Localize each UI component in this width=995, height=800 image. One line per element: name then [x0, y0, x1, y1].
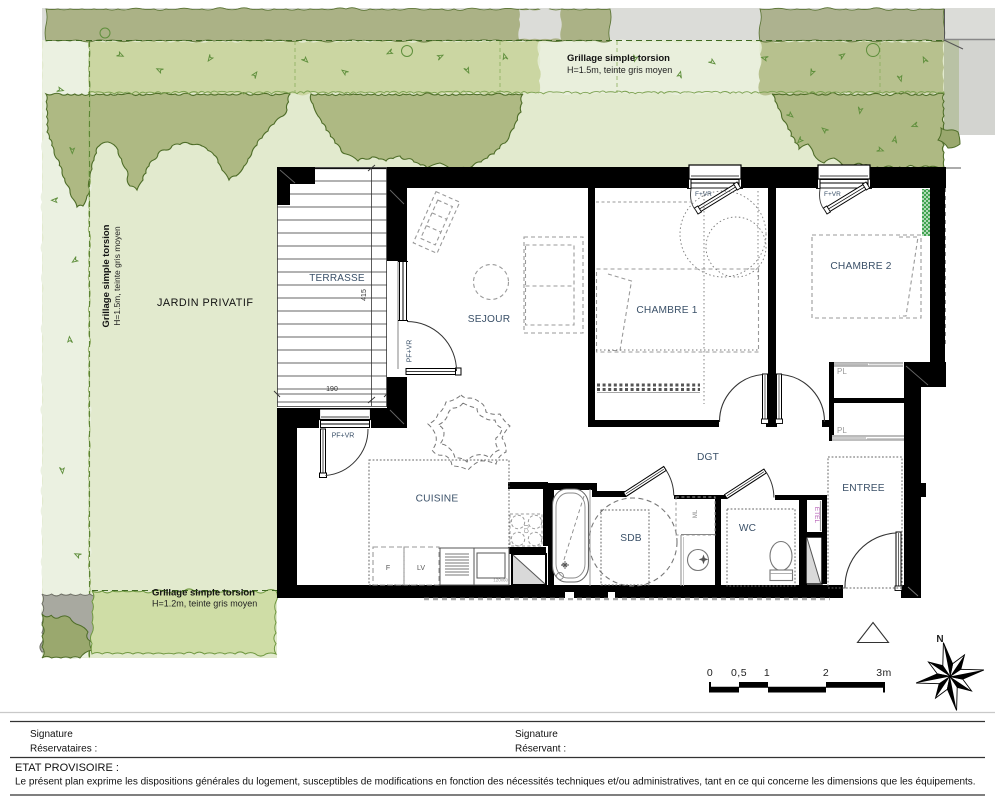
svg-text:ENTREE: ENTREE [842, 483, 885, 494]
svg-text:Grillage simple torsion: Grillage simple torsion [567, 53, 670, 64]
svg-text:3m: 3m [876, 667, 892, 679]
svg-text:PF+VR: PF+VR [332, 433, 355, 440]
svg-text:SEJOUR: SEJOUR [468, 314, 511, 325]
svg-text:CHAMBRE 2: CHAMBRE 2 [830, 261, 891, 272]
svg-text:CU: CU [525, 525, 531, 534]
svg-text:Signature: Signature [30, 729, 73, 740]
svg-text:ETEL: ETEL [813, 507, 820, 524]
svg-text:N: N [936, 634, 943, 645]
svg-text:SDB: SDB [620, 533, 642, 544]
svg-text:Grillage simple torsion: Grillage simple torsion [152, 588, 255, 599]
svg-text:TERRASSE: TERRASSE [309, 273, 365, 284]
svg-text:JARDIN PRIVATIF: JARDIN PRIVATIF [157, 297, 253, 309]
svg-text:CUISINE: CUISINE [416, 494, 459, 505]
svg-text:WC: WC [739, 523, 756, 534]
svg-text:1: 1 [764, 667, 770, 679]
svg-text:0,5: 0,5 [731, 667, 747, 679]
svg-text:Grillage simple torsion: Grillage simple torsion [101, 224, 112, 327]
svg-text:Le présent plan exprime les di: Le présent plan exprime les dispositions… [15, 777, 976, 788]
svg-text:ML: ML [693, 509, 699, 518]
svg-text:Signature: Signature [515, 729, 558, 740]
svg-text:F: F [386, 565, 390, 572]
svg-text:Réservant :: Réservant : [515, 744, 566, 755]
svg-text:F+VR: F+VR [824, 191, 841, 198]
svg-text:PF+VR: PF+VR [407, 340, 414, 363]
svg-text:120x60: 120x60 [493, 578, 508, 583]
svg-text:LV: LV [417, 565, 425, 572]
svg-text:415: 415 [361, 289, 368, 301]
svg-text:DGT: DGT [697, 452, 719, 463]
svg-text:H=1.5m, teinte gris moyen: H=1.5m, teinte gris moyen [567, 65, 672, 75]
svg-text:ETAT PROVISOIRE :: ETAT PROVISOIRE : [15, 762, 119, 774]
svg-text:0: 0 [707, 667, 713, 679]
svg-text:Réservataires :: Réservataires : [30, 744, 97, 755]
svg-text:H=1.2m, teinte gris moyen: H=1.2m, teinte gris moyen [152, 599, 257, 609]
svg-text:PL: PL [837, 426, 847, 435]
svg-text:2: 2 [823, 667, 829, 679]
svg-text:PL: PL [837, 367, 847, 376]
svg-text:CHAMBRE 1: CHAMBRE 1 [636, 305, 697, 316]
svg-text:190: 190 [326, 386, 338, 393]
svg-text:H=1.5m, teinte gris moyen: H=1.5m, teinte gris moyen [112, 226, 122, 326]
